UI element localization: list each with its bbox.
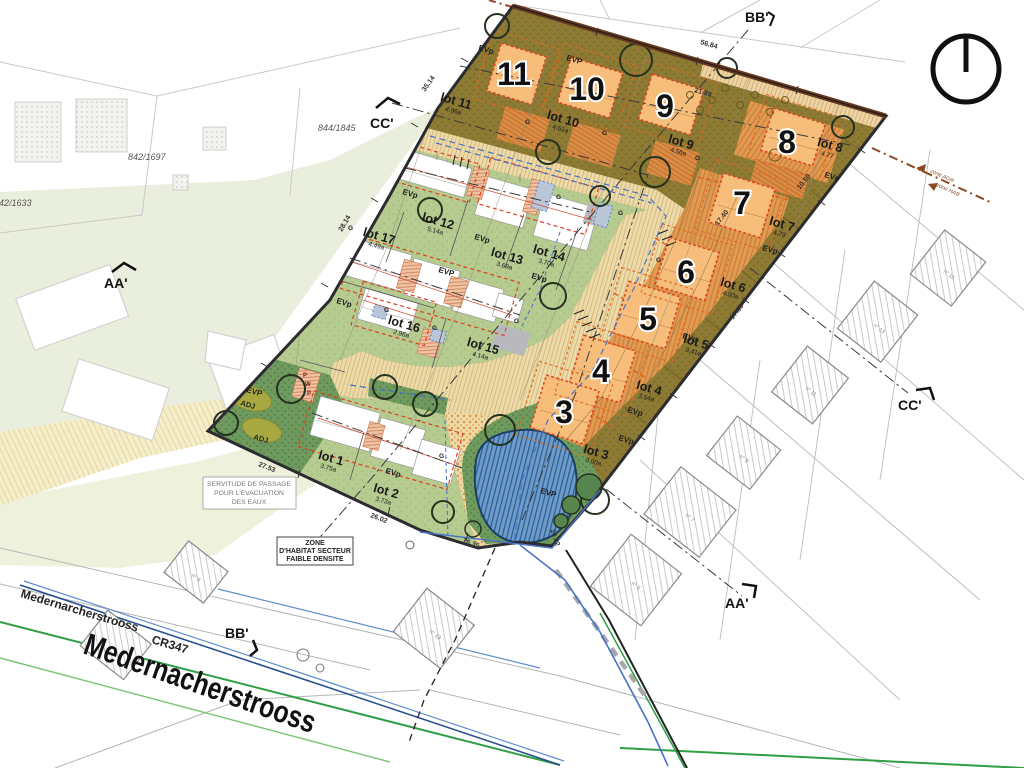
svg-text:7: 7 <box>733 185 751 221</box>
svg-text:4: 4 <box>592 353 610 389</box>
svg-text:G: G <box>384 307 389 314</box>
svg-text:G: G <box>432 325 437 332</box>
svg-text:DES EAUX: DES EAUX <box>232 499 267 506</box>
svg-text:5: 5 <box>639 301 657 337</box>
svg-text:CC': CC' <box>898 397 922 413</box>
svg-text:842/1697: 842/1697 <box>128 152 167 162</box>
svg-text:G: G <box>525 119 530 126</box>
svg-text:10: 10 <box>569 71 605 107</box>
svg-text:9: 9 <box>656 88 674 124</box>
svg-text:G: G <box>348 225 353 232</box>
svg-text:D'HABITAT SECTEUR: D'HABITAT SECTEUR <box>279 548 351 555</box>
svg-text:G: G <box>514 318 519 325</box>
svg-text:842/1633: 842/1633 <box>0 198 32 208</box>
svg-text:AA': AA' <box>725 595 749 611</box>
svg-text:SERVITUDE DE PASSAGE: SERVITUDE DE PASSAGE <box>207 481 291 488</box>
svg-text:BB': BB' <box>225 625 249 641</box>
svg-text:P: P <box>303 373 307 379</box>
svg-text:8: 8 <box>778 124 796 160</box>
svg-text:POUR L'EVACUATION: POUR L'EVACUATION <box>214 490 284 497</box>
svg-text:AA': AA' <box>104 275 128 291</box>
svg-text:11: 11 <box>497 56 531 92</box>
svg-text:W: W <box>305 382 311 388</box>
svg-text:G: G <box>556 194 561 201</box>
svg-text:G: G <box>695 155 700 162</box>
svg-text:BB': BB' <box>745 9 769 25</box>
svg-text:CC': CC' <box>370 115 394 131</box>
svg-text:P: P <box>307 391 311 397</box>
svg-text:G: G <box>602 130 607 137</box>
svg-text:FAIBLE DENSITE: FAIBLE DENSITE <box>286 556 344 563</box>
svg-text:6: 6 <box>677 254 695 290</box>
svg-text:G: G <box>439 453 444 460</box>
svg-text:G: G <box>656 257 661 264</box>
svg-text:G: G <box>618 210 623 217</box>
svg-text:ZONE: ZONE <box>305 540 325 547</box>
svg-text:3: 3 <box>555 394 573 430</box>
svg-text:844/1845: 844/1845 <box>318 123 357 133</box>
